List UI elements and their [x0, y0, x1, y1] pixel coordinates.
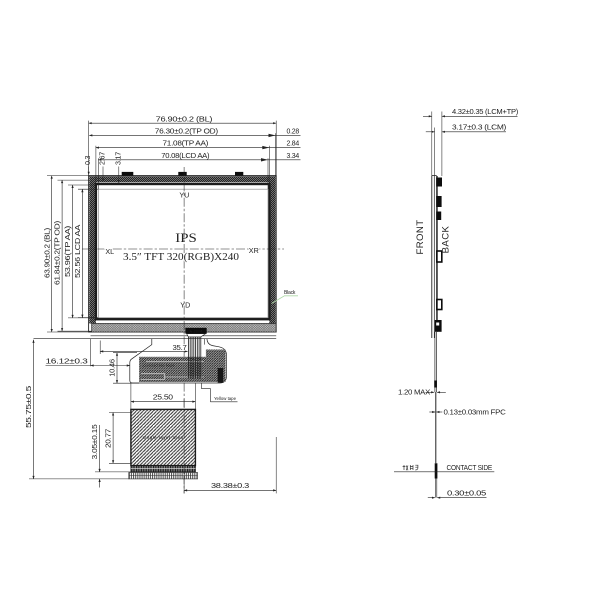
- svg-text:16.12±0.3: 16.12±0.3: [46, 357, 88, 366]
- svg-text:10.46: 10.46: [108, 359, 117, 377]
- svg-text:2.84: 2.84: [287, 139, 300, 148]
- svg-text:35.7: 35.7: [173, 343, 187, 352]
- svg-text:XR: XR: [249, 246, 259, 255]
- svg-text:63.90±0.2 (BL): 63.90±0.2 (BL): [42, 228, 51, 278]
- svg-text:20.77: 20.77: [104, 429, 113, 448]
- svg-text:3.5″ TFT 320(RGB)X240: 3.5″ TFT 320(RGB)X240: [123, 251, 239, 263]
- svg-text:conductive tape: conductive tape: [143, 363, 175, 368]
- svg-text:52.56 LCD AA: 52.56 LCD AA: [73, 224, 82, 278]
- svg-text:0.28: 0.28: [287, 127, 300, 136]
- svg-text:0.13±0.03mm FPC: 0.13±0.03mm FPC: [444, 408, 506, 417]
- svg-text:76.30±0.2(TP OD): 76.30±0.2(TP OD): [155, 127, 218, 136]
- svg-text:70.08(LCD AA): 70.08(LCD AA): [161, 151, 209, 160]
- svg-text:3.34: 3.34: [287, 151, 300, 160]
- svg-text:0.3: 0.3: [83, 156, 92, 165]
- svg-text:IPS: IPS: [175, 231, 197, 245]
- svg-text:53.96(TP AA): 53.96(TP AA): [63, 226, 72, 277]
- svg-text:3.17: 3.17: [113, 152, 122, 165]
- svg-text:CONTACT SIDE: CONTACT SIDE: [447, 463, 493, 472]
- svg-text:BACK: BACK: [440, 225, 451, 253]
- svg-text:XL: XL: [105, 247, 114, 256]
- svg-text:3.05±0.15: 3.05±0.15: [90, 424, 99, 459]
- svg-text:YD: YD: [180, 301, 190, 310]
- svg-text:A-2004: A-2004: [190, 330, 203, 334]
- svg-text:0.30±0.05: 0.30±0.05: [447, 489, 486, 498]
- svg-text:55.75±0.5: 55.75±0.5: [24, 386, 33, 428]
- svg-text:Yellow tape: Yellow tape: [214, 396, 236, 401]
- svg-text:71.08(TP AA): 71.08(TP AA): [163, 139, 209, 148]
- svg-text:YU: YU: [179, 190, 189, 199]
- svg-text:61.84±0.2(TP OD): 61.84±0.2(TP OD): [53, 221, 62, 285]
- svg-text:25.50: 25.50: [153, 392, 173, 401]
- svg-text:38.38±0.3: 38.38±0.3: [211, 481, 249, 490]
- svg-text:1.20 MAX: 1.20 MAX: [398, 387, 430, 396]
- svg-text:single layer area: single layer area: [143, 435, 184, 440]
- svg-text:4.32±0.35 (LCM+TP): 4.32±0.35 (LCM+TP): [452, 107, 518, 116]
- svg-text:FRONT: FRONT: [415, 219, 426, 254]
- svg-text:3.17±0.3 (LCM): 3.17±0.3 (LCM): [452, 123, 506, 132]
- svg-text:2.67: 2.67: [98, 152, 107, 165]
- svg-text:Black: Black: [284, 290, 296, 296]
- svg-text:76.90±0.2 (BL): 76.90±0.2 (BL): [156, 114, 213, 123]
